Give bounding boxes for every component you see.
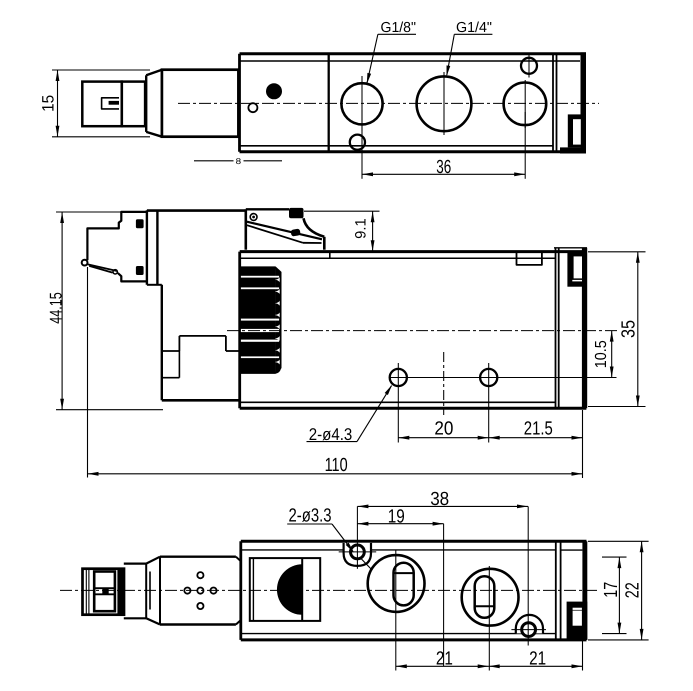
svg-text:10.5: 10.5 — [593, 340, 610, 368]
svg-text:21.5: 21.5 — [524, 418, 553, 439]
svg-text:17: 17 — [601, 582, 622, 598]
svg-text:21: 21 — [436, 648, 453, 669]
svg-text:15: 15 — [40, 95, 58, 112]
svg-text:G1/8": G1/8" — [381, 20, 417, 36]
svg-text:8: 8 — [236, 156, 242, 166]
svg-text:44.15: 44.15 — [46, 292, 65, 324]
svg-text:2-ø3.3: 2-ø3.3 — [289, 505, 332, 526]
svg-text:110: 110 — [325, 455, 348, 476]
svg-text:G1/4": G1/4" — [456, 20, 492, 36]
svg-text:22: 22 — [623, 582, 644, 598]
svg-text:38: 38 — [430, 489, 449, 510]
svg-text:36: 36 — [436, 157, 451, 178]
svg-text:21: 21 — [529, 648, 546, 669]
svg-text:19: 19 — [388, 506, 405, 527]
svg-text:20: 20 — [434, 418, 453, 439]
svg-text:35: 35 — [619, 320, 640, 338]
svg-text:9.1: 9.1 — [353, 218, 370, 239]
